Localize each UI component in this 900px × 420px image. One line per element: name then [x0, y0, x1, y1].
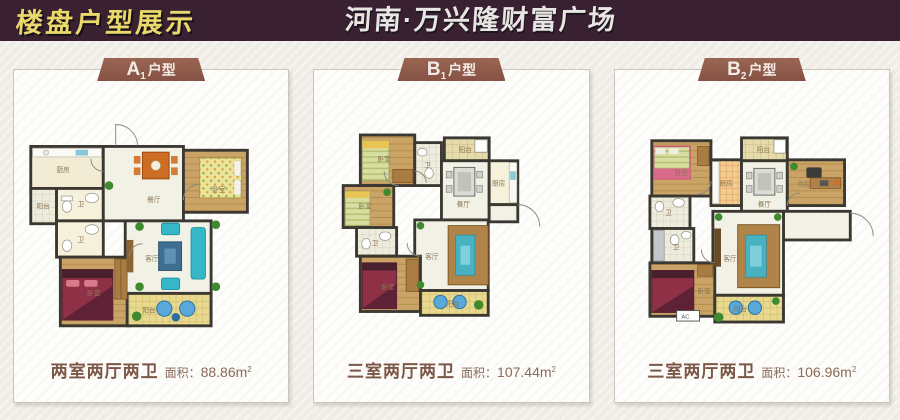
floorplan-wrap-b1: 卧室 卫 阳台 餐厅 厨房 卧室 卫 客厅 卧室 阳台 [314, 104, 588, 352]
plan-ribbon-b2: B2户型 [698, 58, 806, 81]
room-label-study: 书房 [797, 179, 811, 188]
room-label-bath: 卫 [372, 239, 379, 247]
plan-area-value: 107.44m [497, 364, 551, 380]
plan-type-suffix: 户型 [448, 62, 476, 78]
dresser [697, 146, 708, 165]
plan-letter-sub: 1 [140, 71, 146, 82]
plan-area-label: 面积： [461, 366, 497, 380]
plan-area-label: 面积： [165, 366, 201, 380]
plan-ribbon-a1: A1户型 [97, 58, 205, 81]
room-label-living: 客厅 [723, 253, 737, 262]
plan-area-sup: 2 [852, 365, 856, 374]
wardrobe [407, 259, 419, 291]
plan-letter: B [727, 59, 741, 80]
room-label-dining: 餐厅 [147, 194, 161, 203]
project-title: 河南·万兴隆财富广场 [344, 0, 619, 41]
plan-area-sup: 2 [552, 365, 556, 374]
plan-caption-b1: 三室两厅两卫面积：107.44m2 [314, 357, 588, 382]
room-label-bedroom: 卧室 [382, 282, 396, 291]
room-label-kitchen: 厨房 [57, 165, 71, 174]
tv-cabinet [127, 239, 134, 271]
plan-letter: B [427, 59, 441, 80]
plan-caption-a1: 两室两厅两卫面积：88.86m2 [14, 357, 288, 382]
plan-type-suffix: 户型 [148, 62, 176, 78]
sofa-brown [449, 225, 489, 284]
room-label-bedroom: 卧室 [359, 201, 373, 210]
entry-corridor [490, 204, 519, 221]
plan-area-label: 面积： [761, 366, 797, 380]
sofa-brown [738, 224, 780, 287]
plan-type-suffix: 户型 [748, 62, 776, 78]
floorplan-b1: 卧室 卫 阳台 餐厅 厨房 卧室 卫 客厅 卧室 阳台 [322, 114, 580, 343]
wardrobe [393, 169, 413, 182]
entry-corridor [783, 211, 850, 240]
room-label-balcony: 阳台 [143, 305, 157, 314]
room-label-bedroom: 卧室 [378, 154, 392, 163]
room-label-bath: 卫 [425, 161, 432, 169]
plan-spec: 三室两厅两卫 [647, 362, 755, 381]
plan-card-a1: A1户型 [13, 69, 289, 403]
room-label-bath: 卫 [665, 209, 672, 217]
room-label-bath: 卫 [78, 200, 85, 208]
room-label-bedroom: 卧室 [212, 185, 226, 194]
plan-spec: 三室两厅两卫 [347, 362, 455, 381]
plan-letter-sub: 1 [441, 71, 447, 82]
plan-letter: A [127, 59, 141, 80]
site-title: 楼盘户型展示 [14, 1, 197, 40]
floorplan-wrap-a1: 厨房 阳台 卫 卫 卧室 餐厅 卧室 客厅 阳台 [14, 104, 288, 352]
bed-red [652, 270, 694, 312]
plan-ribbon-b1: B1户型 [397, 58, 505, 81]
plans-area: A1户型 [0, 41, 900, 403]
plan-card-b2: B2户型 [614, 69, 890, 403]
room-label-bath: 卫 [78, 235, 85, 243]
room-label-dining: 餐厅 [457, 199, 471, 208]
room-label-balcony: 阳台 [37, 201, 51, 210]
ac-label: AC [681, 314, 689, 320]
plan-spec: 两室两厅两卫 [51, 362, 159, 381]
room-label-balcony: 阳台 [757, 145, 771, 154]
wardrobe [697, 264, 712, 275]
room-label-balcony: 阳台 [447, 298, 461, 307]
floorplan-wrap-b2: 卧室 厨房 阳台 餐厅 书房 卫 卫 客厅 卧室 阳台 AC [615, 104, 889, 352]
room-label-kitchen: 厨房 [719, 178, 733, 187]
plan-letter-sub: 2 [741, 71, 747, 82]
room-label-balcony: 阳台 [734, 304, 748, 313]
room-label-living: 客厅 [426, 252, 440, 261]
plan-area-value: 88.86m [201, 364, 248, 380]
room-label-kitchen: 厨房 [493, 178, 507, 187]
room-label-living: 客厅 [145, 253, 159, 262]
room-label-bedroom: 卧室 [87, 288, 101, 297]
header-bar: 楼盘户型展示 河南·万兴隆财富广场 [0, 0, 900, 41]
plan-area-sup: 2 [247, 365, 251, 374]
floorplan-b2: 卧室 厨房 阳台 餐厅 书房 卫 卫 客厅 卧室 阳台 AC [623, 114, 881, 343]
room-label-bedroom: 卧室 [697, 286, 711, 295]
plan-caption-b2: 三室两厅两卫面积：106.96m2 [615, 357, 889, 382]
plan-area-value: 106.96m [797, 364, 851, 380]
plan-card-b1: B1户型 [313, 69, 589, 403]
room-label-dining: 餐厅 [758, 199, 772, 208]
tv-cabinet [714, 228, 721, 266]
room-label-balcony: 阳台 [459, 145, 473, 154]
room-label-bath: 卫 [673, 243, 680, 251]
room-label-bedroom: 卧室 [675, 168, 689, 177]
floorplan-a1: 厨房 阳台 卫 卫 卧室 餐厅 卧室 客厅 阳台 [22, 114, 280, 343]
